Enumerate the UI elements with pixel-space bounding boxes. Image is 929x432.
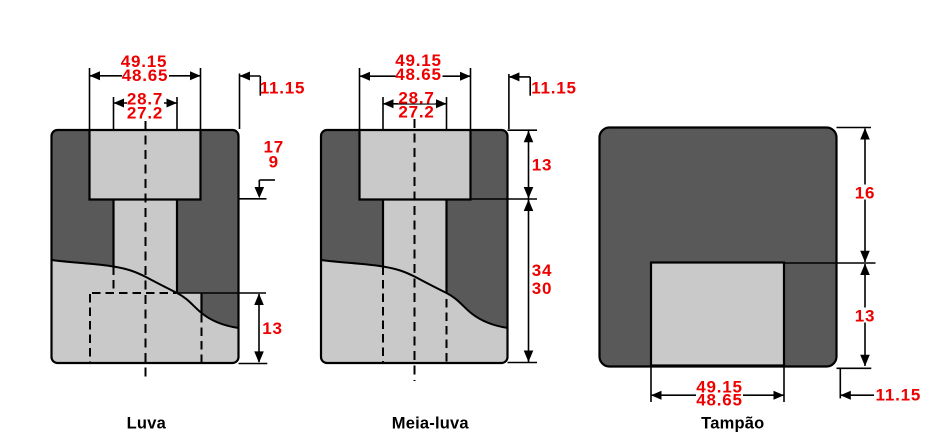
svg-text:11.15: 11.15: [531, 79, 577, 98]
svg-text:Tampão: Tampão: [701, 415, 764, 432]
svg-text:27.2: 27.2: [127, 104, 163, 123]
svg-text:13: 13: [855, 306, 876, 325]
svg-text:34: 34: [532, 261, 553, 280]
svg-text:13: 13: [262, 319, 283, 338]
svg-text:27.2: 27.2: [398, 102, 434, 121]
svg-text:11.15: 11.15: [260, 78, 306, 97]
svg-text:48.65: 48.65: [696, 390, 743, 409]
svg-text:30: 30: [532, 279, 553, 298]
svg-text:9: 9: [269, 152, 279, 171]
svg-text:48.65: 48.65: [395, 65, 442, 84]
svg-text:Luva: Luva: [127, 415, 167, 432]
svg-text:13: 13: [532, 156, 553, 175]
svg-text:48.65: 48.65: [122, 66, 169, 85]
svg-text:11.15: 11.15: [876, 386, 922, 405]
svg-text:16: 16: [855, 183, 876, 202]
svg-text:Meia-luva: Meia-luva: [392, 415, 470, 432]
